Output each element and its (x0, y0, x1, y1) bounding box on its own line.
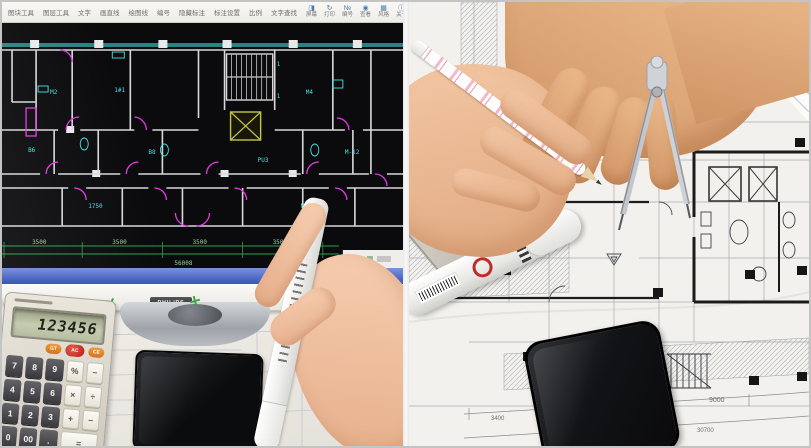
room-label: M2 (50, 89, 58, 96)
cad-menu-item[interactable]: 隐藏标注 (179, 7, 205, 17)
key-minus[interactable]: − (85, 362, 104, 384)
desktop-calculator: 123456 GT AC CE 7 8 9 % − 4 5 6 × ÷ 1 2 … (2, 291, 117, 446)
compass-hinge-screw (652, 87, 662, 97)
marker-logo-stamp (469, 254, 496, 281)
dim-total-label: 56008 (174, 260, 192, 267)
room-label: 1#1 (114, 87, 125, 94)
room-label: B6 (28, 147, 36, 154)
cad-menu-item[interactable]: 图层工具 (43, 7, 69, 17)
key-percent[interactable]: % (65, 360, 84, 382)
ac-key[interactable]: AC (65, 344, 85, 358)
right-photo-blueprint-desk: 3400 9000 30700 520 200 0 0 1 4 (409, 2, 809, 446)
key-multiply[interactable]: × (63, 384, 82, 406)
stair-mark: 1 (277, 61, 281, 68)
cad-menu-item[interactable]: 文字 (78, 7, 91, 17)
cad-toolbar-button[interactable]: ◨屏幕 (306, 5, 317, 19)
key-divide[interactable]: ÷ (83, 385, 102, 407)
cad-menu-item[interactable]: 绘图线 (129, 7, 149, 17)
key-6[interactable]: 6 (43, 382, 62, 404)
photo-collage: 图块工具 图层工具 文字 画直线 绘图线 编号 隐藏标注 标注设置 比例 文字查… (0, 0, 811, 448)
room-label: B8 (148, 149, 156, 156)
cad-toolbar-button[interactable]: №编号 (342, 5, 353, 19)
calculator-brand-mark (14, 298, 52, 304)
compass-knob (651, 56, 663, 68)
dim-label: 3500 (192, 239, 207, 246)
key-0[interactable]: 0 (2, 426, 18, 446)
toolbar-button-label: 屏幕 (306, 13, 317, 19)
key-4[interactable]: 4 (3, 378, 22, 400)
gt-key[interactable]: GT (45, 343, 62, 354)
drawing-compass (595, 56, 715, 241)
room-label: PU3 (258, 157, 269, 164)
cad-toolbar: 图块工具 图层工具 文字 画直线 绘图线 编号 隐藏标注 标注设置 比例 文字查… (2, 2, 403, 23)
room-label: M-12 (345, 149, 360, 156)
cad-menu-item[interactable]: 编号 (157, 7, 170, 17)
toolbar-button-label: 查看 (360, 13, 371, 19)
cad-toolbar-button[interactable]: ▦风格 (378, 5, 389, 19)
cad-menu-item[interactable]: 文字查找 (271, 7, 297, 17)
key-equals[interactable]: = (59, 431, 98, 446)
calculator-display-value: 123456 (35, 315, 99, 338)
key-8[interactable]: 8 (25, 357, 44, 379)
key-3[interactable]: 3 (41, 406, 60, 428)
dim-label: 9000 (709, 397, 725, 404)
toolbar-button-label: 打印 (324, 13, 335, 19)
key-7[interactable]: 7 (5, 355, 24, 377)
left-photo-cad-workstation: 图块工具 图层工具 文字 画直线 绘图线 编号 隐藏标注 标注设置 比例 文字查… (2, 2, 403, 446)
key-minus2[interactable]: − (81, 409, 100, 431)
key-5[interactable]: 5 (23, 380, 42, 402)
room-label: 1750 (88, 203, 103, 210)
dim-label: 3500 (112, 239, 127, 246)
toolbar-button-label: 关于 (396, 13, 403, 19)
key-dot[interactable]: . (39, 429, 58, 446)
dim-label: 3400 (491, 416, 505, 422)
dim-label: 30700 (697, 428, 714, 434)
cad-screen-floorplan: M2 1#1 B6 B8 M4 PU3 M-12 1750 M2 1 1 (2, 22, 403, 268)
toolbar-button-label: 风格 (378, 13, 389, 19)
key-2[interactable]: 2 (21, 404, 40, 426)
stair-mark: 1 (277, 93, 281, 100)
ce-key[interactable]: CE (88, 347, 105, 358)
cad-toolbar-icon-group: ◨屏幕 ↻打印 №编号 ◉查看 ▦风格 ⓘ关于 ▲帮助 (306, 5, 403, 19)
key-plus[interactable]: + (61, 407, 80, 429)
room-label: M4 (306, 89, 314, 96)
cad-dim-band (2, 43, 403, 47)
stand-hinge (168, 304, 222, 326)
cad-menu-item[interactable]: 图块工具 (8, 7, 34, 17)
cad-toolbar-button[interactable]: ↻打印 (324, 5, 335, 19)
toolbar-button-label: 编号 (342, 13, 353, 19)
cad-menu-item[interactable]: 标注设置 (214, 7, 240, 17)
cad-elevator (231, 112, 261, 140)
cad-toolbar-button[interactable]: ⓘ关于 (396, 5, 403, 19)
cad-menu-item[interactable]: 画直线 (100, 7, 120, 17)
dim-label: 3500 (32, 239, 47, 246)
key-00[interactable]: 00 (19, 428, 38, 446)
calculator-keypad: 7 8 9 % − 4 5 6 × ÷ 1 2 3 + − 0 00 . = (2, 355, 104, 446)
cad-toolbar-button[interactable]: ◉查看 (360, 5, 371, 19)
cad-floorplan-drawing: M2 1#1 B6 B8 M4 PU3 M-12 1750 M2 1 1 (2, 22, 403, 268)
key-9[interactable]: 9 (45, 358, 64, 380)
key-1[interactable]: 1 (2, 402, 20, 424)
smartphone (132, 350, 263, 446)
cad-menu-item[interactable]: 比例 (249, 7, 262, 17)
